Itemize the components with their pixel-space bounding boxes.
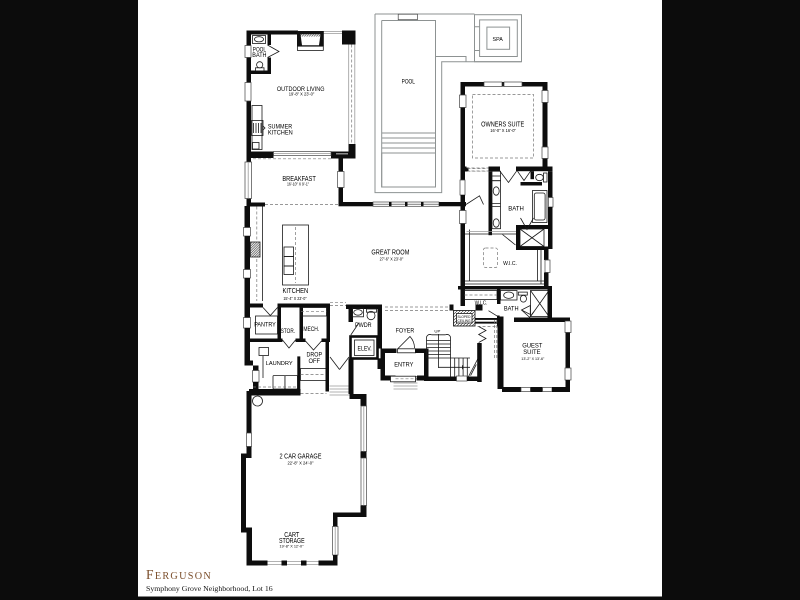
svg-text:22'-8" X 24'-0": 22'-8" X 24'-0": [288, 460, 314, 465]
svg-text:KITCHEN: KITCHEN: [268, 131, 293, 137]
svg-text:CEILING: CEILING: [458, 319, 471, 323]
svg-text:BATH: BATH: [504, 305, 519, 312]
svg-text:KITCHEN: KITCHEN: [283, 288, 309, 295]
svg-text:W.I.C.: W.I.C.: [503, 261, 517, 267]
svg-text:19'-8" X 12'-0": 19'-8" X 12'-0": [280, 543, 305, 548]
svg-text:W.I.C.: W.I.C.: [475, 301, 488, 307]
svg-text:BATH: BATH: [508, 205, 524, 212]
svg-text:PANTRY: PANTRY: [254, 322, 276, 329]
svg-text:27'-6" X 23'-0": 27'-6" X 23'-0": [380, 256, 404, 261]
svg-text:PWDR: PWDR: [355, 323, 372, 329]
svg-text:FOYER: FOYER: [396, 327, 414, 334]
svg-text:STOR.: STOR.: [281, 329, 295, 335]
svg-text:GREAT ROOM: GREAT ROOM: [371, 248, 409, 257]
svg-text:16'-10" X 9'-1": 16'-10" X 9'-1": [287, 181, 309, 186]
svg-text:BATH: BATH: [252, 52, 267, 59]
svg-text:15'-4" X 23'-0": 15'-4" X 23'-0": [283, 296, 307, 301]
svg-text:ELEV.: ELEV.: [358, 347, 372, 353]
svg-text:Symphony Grove Neighborhood, L: Symphony Grove Neighborhood, Lot 16: [146, 584, 273, 593]
svg-text:DROP: DROP: [307, 352, 323, 358]
svg-text:UP: UP: [434, 329, 441, 333]
svg-text:OFF: OFF: [309, 359, 321, 365]
svg-text:MECH.: MECH.: [303, 327, 319, 333]
svg-text:13'-2" X 13'-6": 13'-2" X 13'-6": [521, 356, 545, 361]
svg-text:LAUNDRY: LAUNDRY: [266, 361, 293, 367]
svg-text:ENTRY: ENTRY: [394, 362, 413, 369]
svg-text:POOL: POOL: [402, 79, 416, 86]
svg-text:2 CAR GARAGE: 2 CAR GARAGE: [280, 453, 322, 460]
svg-text:19'-8" X 23'-0": 19'-8" X 23'-0": [289, 92, 315, 97]
svg-text:SPA: SPA: [493, 37, 504, 43]
svg-text:16'-0" X 16'-0": 16'-0" X 16'-0": [490, 128, 516, 133]
